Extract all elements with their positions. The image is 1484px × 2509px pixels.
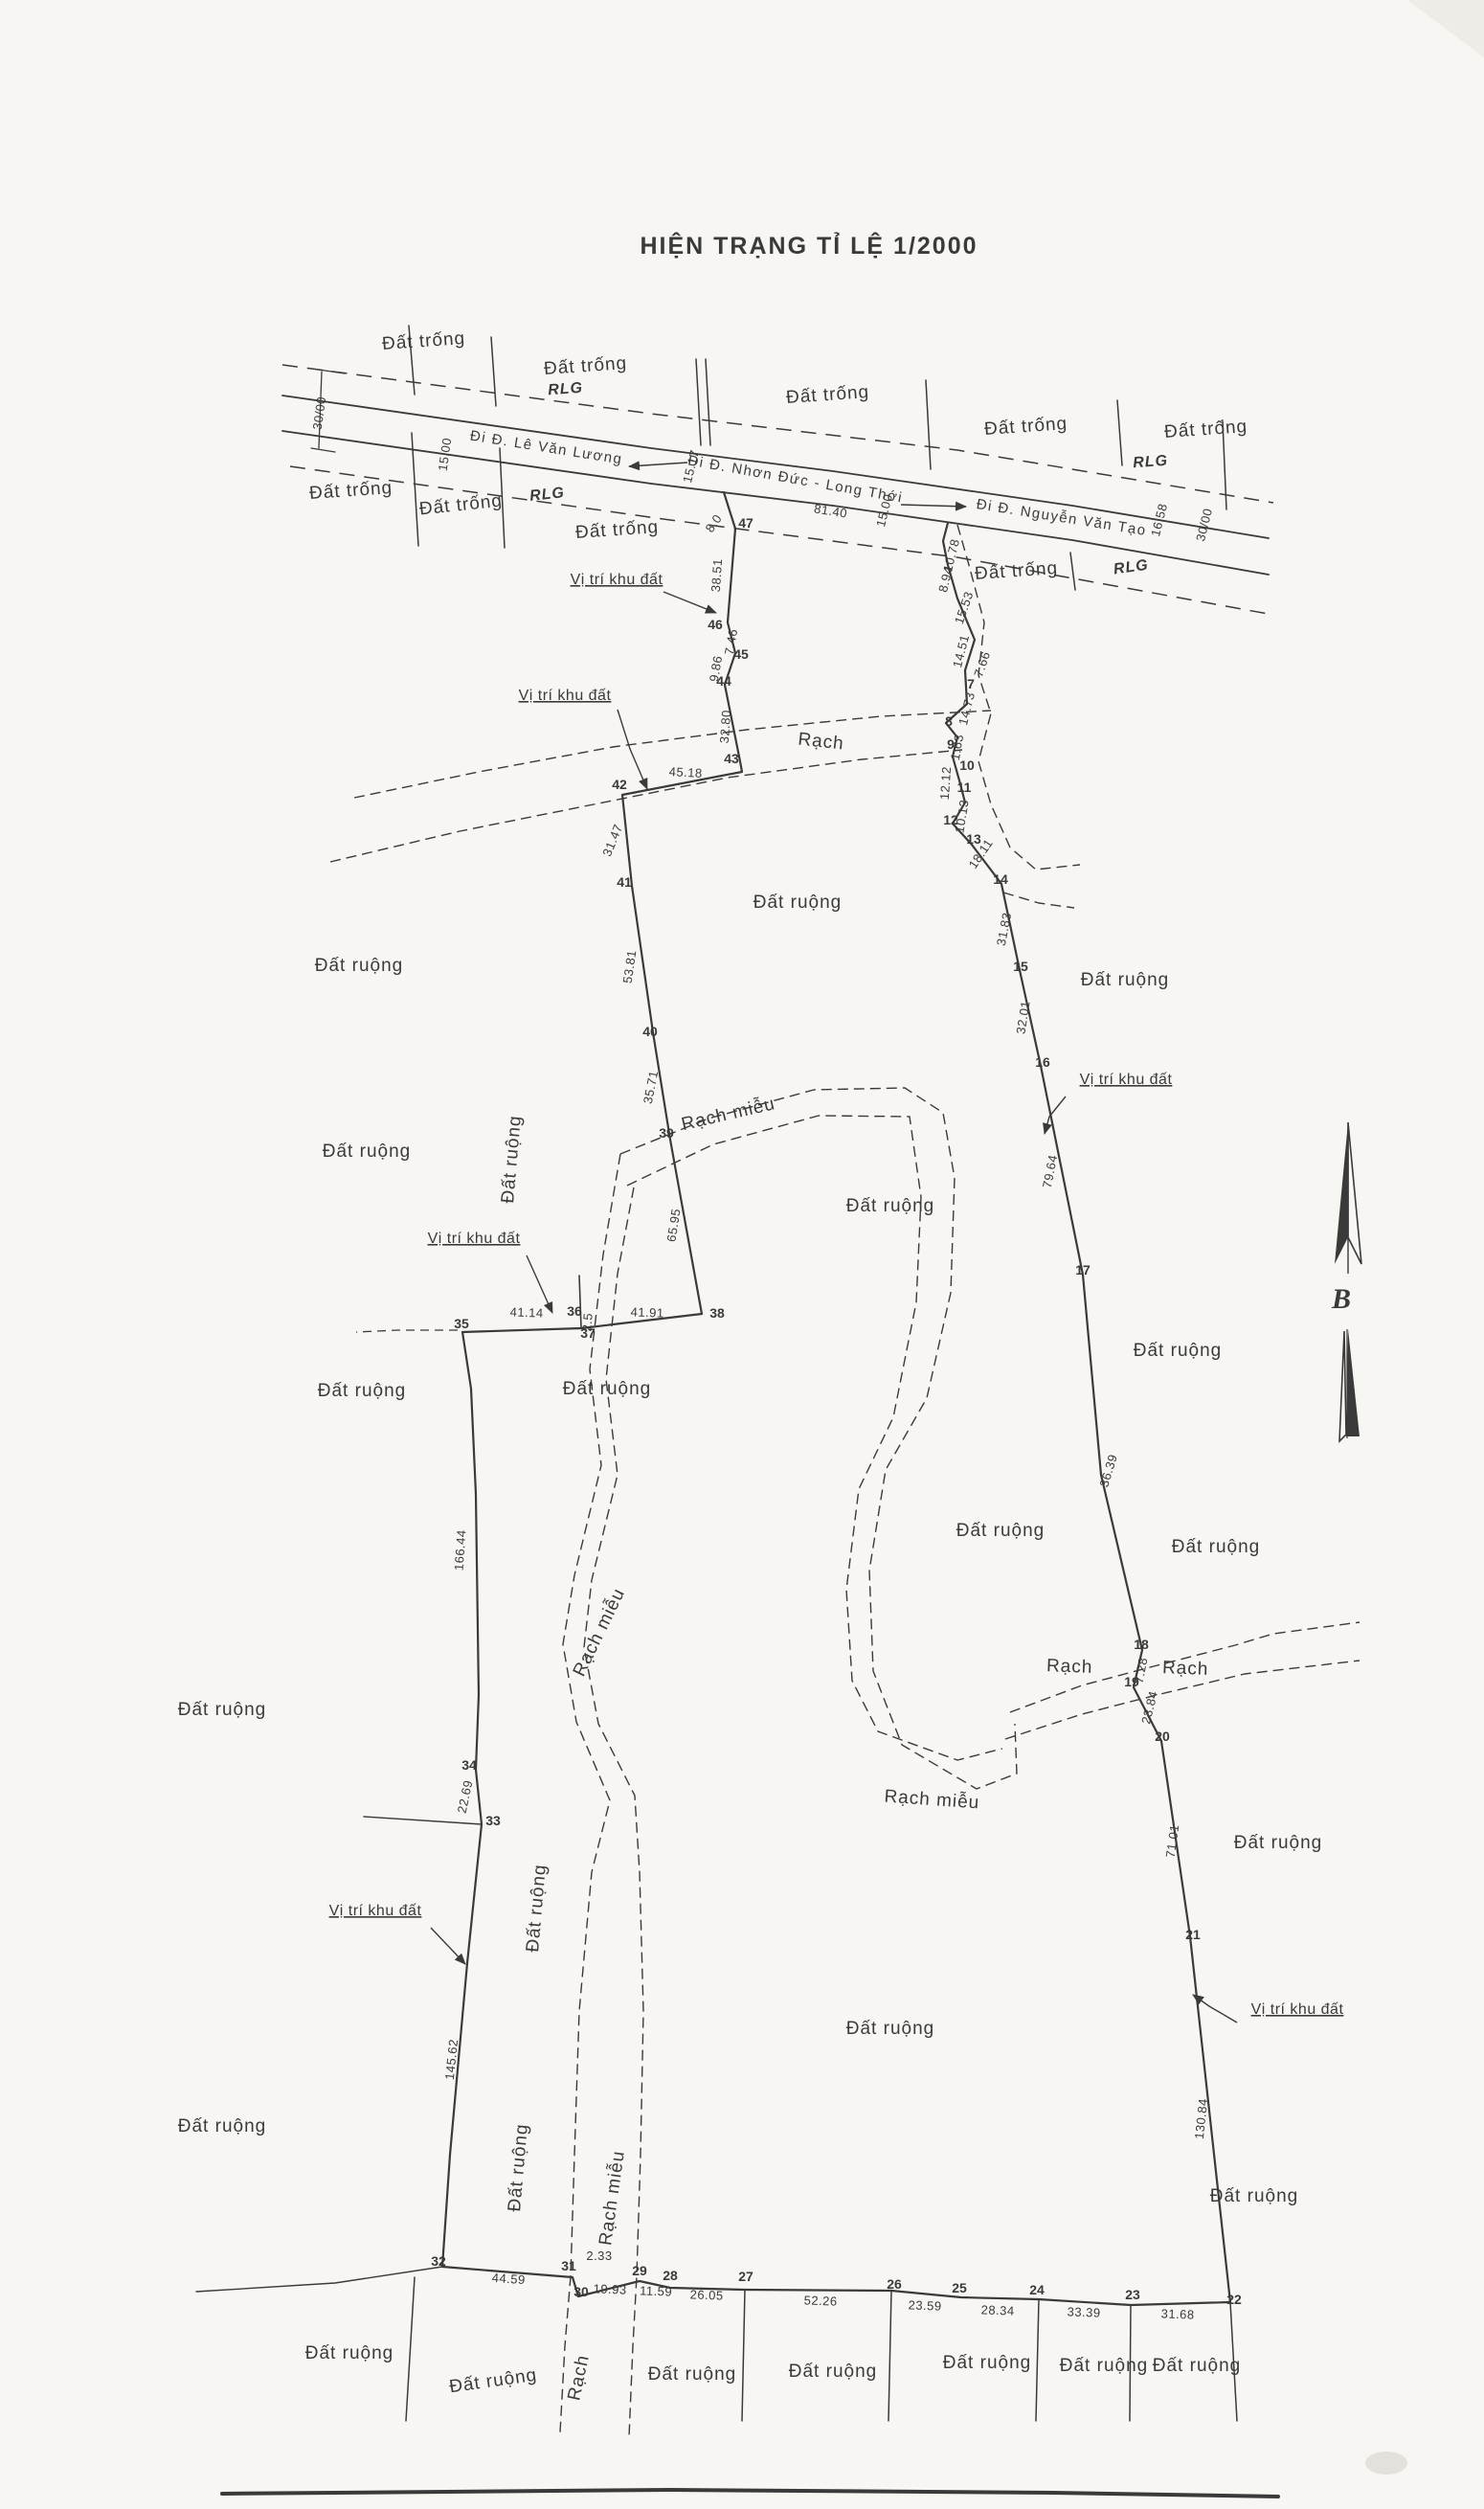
measurement-label: 19.93 — [593, 2281, 627, 2296]
land-use-label: Đất ruộng — [1134, 1341, 1222, 1361]
point-number: 15 — [1013, 959, 1028, 974]
land-use-label: Đất ruộng — [1081, 970, 1169, 990]
point-number: 23 — [1125, 2287, 1140, 2302]
point-number: 14 — [993, 871, 1008, 887]
point-number: 32 — [431, 2253, 446, 2269]
measurement-label: 45.18 — [668, 764, 703, 780]
point-number: 42 — [612, 777, 627, 792]
point-number: 31 — [561, 2258, 576, 2273]
point-number: 27 — [738, 2269, 753, 2284]
point-number: 29 — [632, 2263, 647, 2278]
land-use-label: Đất ruộng — [178, 2116, 266, 2136]
point-number: 20 — [1155, 1729, 1170, 1744]
measurement-label: 23.59 — [908, 2297, 942, 2313]
point-number: 22 — [1226, 2292, 1242, 2307]
land-use-label: Đất ruộng — [315, 956, 403, 976]
land-use-label: Đất ruộng — [846, 1196, 934, 1216]
measurement-label: 31.68 — [1160, 2306, 1195, 2321]
site-location-label: Vị trí khu đất — [329, 1903, 422, 1919]
scanned-survey-map-page: HIỆN TRẠNG TỈ LỆ 1/2000 HIỆN TRẠNG TỈ LỆ… — [0, 0, 1484, 2509]
point-number: 41 — [617, 874, 632, 890]
rlg-label: RLG — [1133, 453, 1169, 472]
measurement-label: 44.59 — [491, 2271, 526, 2287]
land-use-label: Đất ruộng — [1153, 2356, 1241, 2376]
stream-label: Rạch — [1162, 1658, 1209, 1680]
measurement-label: 2.5 — [579, 1312, 596, 1332]
measurement-label: 41.14 — [509, 1304, 544, 1320]
measurement-label: 166.44 — [452, 1529, 469, 1571]
map-title: HIỆN TRẠNG TỈ LỆ 1/2000 — [640, 231, 978, 260]
land-use-label: Đất ruộng — [318, 1381, 406, 1401]
point-number: 24 — [1029, 2282, 1045, 2297]
point-number: 17 — [1075, 1262, 1091, 1277]
land-use-label: Đất ruộng — [305, 2343, 393, 2363]
point-number: 11 — [957, 780, 972, 795]
measurement-label: 11.59 — [640, 2283, 673, 2298]
point-number: 46 — [708, 617, 723, 632]
point-number: 30 — [573, 2284, 589, 2299]
point-number: 8 — [945, 713, 953, 729]
point-number: 33 — [485, 1813, 501, 1828]
land-use-label: Đất ruộng — [1234, 1833, 1322, 1853]
north-letter: B — [1331, 1283, 1351, 1315]
measurement-label: 28.34 — [980, 2302, 1015, 2317]
point-number: 7 — [967, 676, 975, 691]
land-use-label: Đất ruộng — [323, 1141, 411, 1162]
measurement-label: 32.80 — [717, 710, 733, 744]
point-number: 43 — [724, 751, 739, 766]
land-use-label: Đất ruộng — [1172, 1537, 1260, 1557]
measurement-label: 2.33 — [586, 2249, 612, 2263]
land-use-label: Đất ruộng — [563, 1379, 651, 1399]
land-use-label: Đất ruộng — [943, 2353, 1031, 2373]
stream-label: Rạch — [1046, 1656, 1093, 1678]
point-number: 25 — [952, 2280, 967, 2295]
point-number: 21 — [1185, 1927, 1201, 1942]
survey-map: HIỆN TRẠNG TỈ LỆ 1/2000Đất trốngĐất trốn… — [0, 0, 1484, 2509]
measurement-label: 38.51 — [708, 558, 725, 593]
point-number: 16 — [1035, 1054, 1050, 1070]
measurement-label: 26.05 — [689, 2287, 724, 2302]
land-use-label: Đất ruộng — [648, 2364, 736, 2385]
land-use-label: Đất ruộng — [178, 1700, 266, 1720]
land-use-label: Đất ruộng — [956, 1521, 1045, 1541]
land-use-label: Đất ruộng — [789, 2362, 877, 2382]
measurement-label: 33.39 — [1067, 2304, 1101, 2319]
point-number: 47 — [738, 515, 753, 531]
point-number: 35 — [454, 1316, 469, 1331]
point-number: 18 — [1134, 1637, 1149, 1652]
site-location-label: Vị trí khu đất — [571, 572, 663, 588]
rlg-label: RLG — [548, 380, 584, 399]
site-location-label: Vị trí khu đất — [519, 688, 612, 704]
point-number: 40 — [642, 1024, 658, 1039]
point-number: 28 — [663, 2268, 678, 2283]
point-number: 34 — [461, 1757, 477, 1773]
point-number: 38 — [709, 1305, 725, 1321]
measurement-label: 12.12 — [937, 766, 954, 801]
measurement-label: 41.91 — [630, 1304, 664, 1320]
land-use-label: Đất ruộng — [846, 2019, 934, 2039]
site-location-label: Vị trí khu đất — [428, 1231, 521, 1247]
point-number: 26 — [887, 2276, 902, 2292]
land-use-label: Đất ruộng — [753, 893, 842, 913]
measurement-label: 52.26 — [803, 2293, 838, 2308]
site-location-label: Vị trí khu đất — [1251, 2001, 1344, 2018]
site-location-label: Vị trí khu đất — [1080, 1072, 1173, 1088]
land-use-label: Đất ruộng — [1060, 2356, 1148, 2376]
land-use-label: Đất ruộng — [1210, 2186, 1298, 2206]
point-number: 39 — [659, 1125, 674, 1141]
